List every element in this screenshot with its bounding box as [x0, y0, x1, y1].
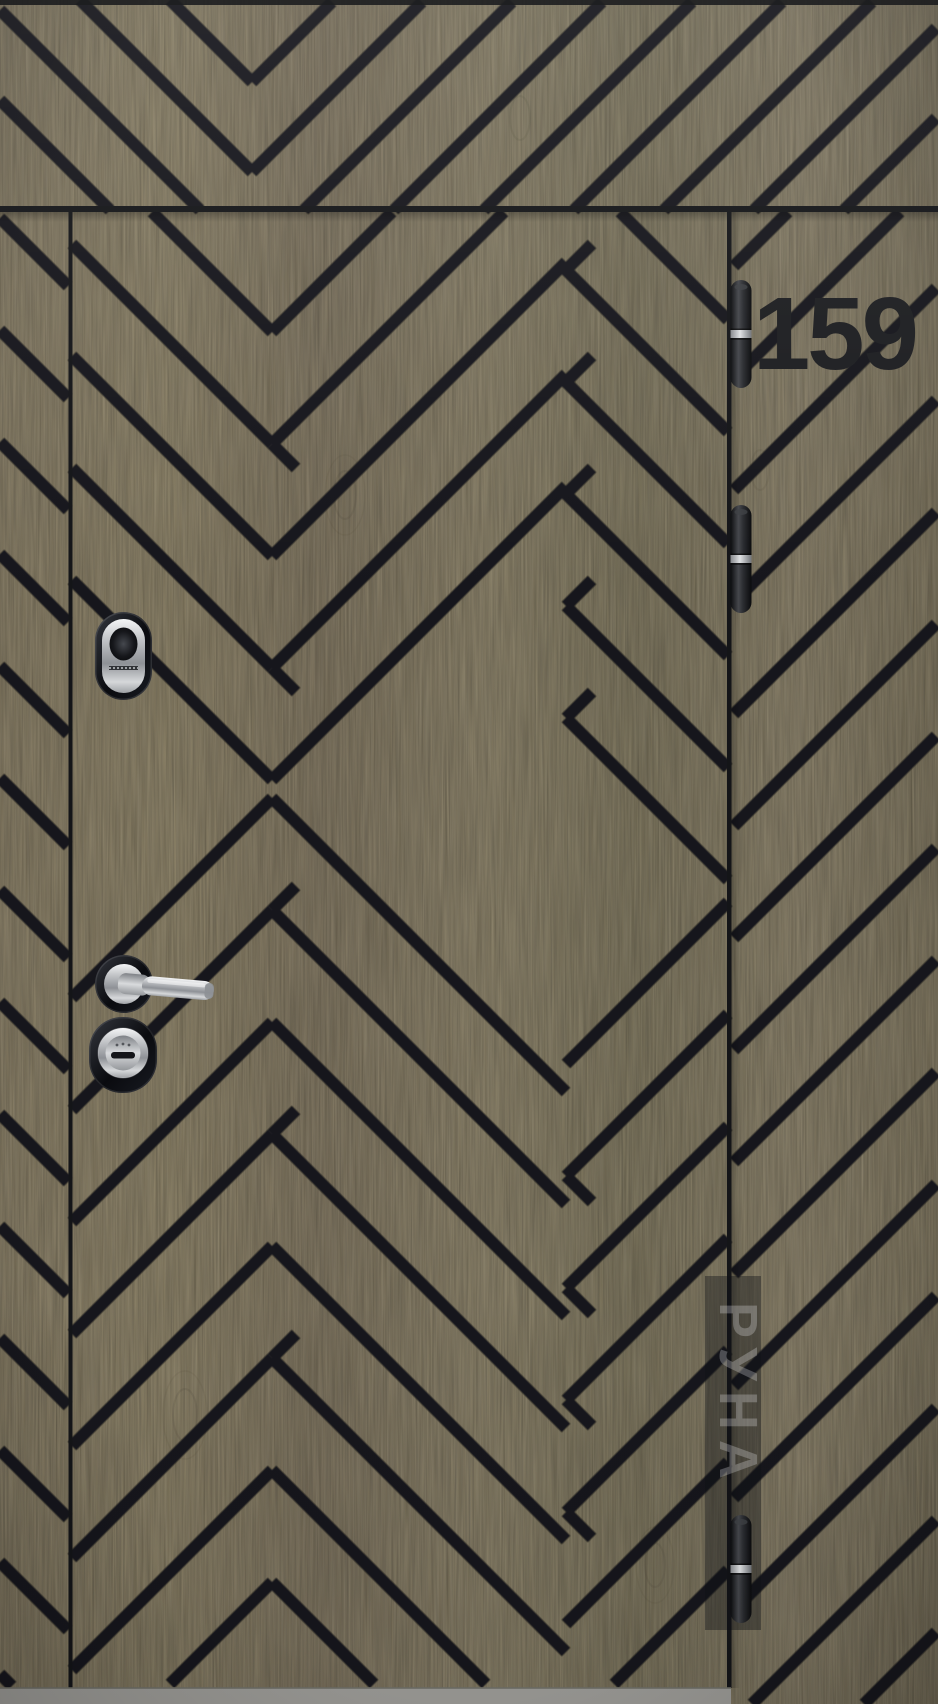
door-product-photo: РУНА 159 — [0, 0, 938, 1704]
vignette — [0, 0, 938, 1704]
door-artwork: РУНА 159 — [0, 0, 938, 1704]
